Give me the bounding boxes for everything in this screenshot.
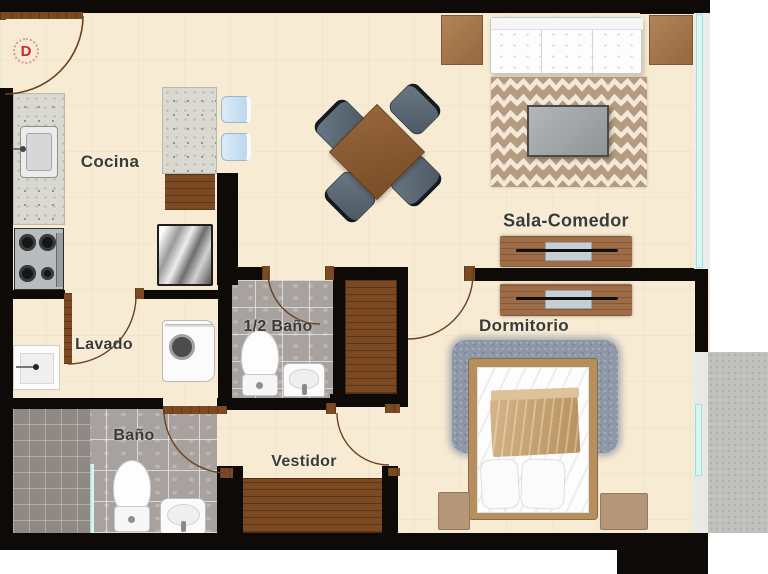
washer-door bbox=[169, 334, 195, 360]
door-jamb bbox=[325, 266, 334, 280]
faucet bbox=[181, 521, 186, 532]
utility-faucet-dot bbox=[33, 364, 39, 370]
sink-basin bbox=[26, 133, 52, 171]
pillow-icon bbox=[520, 458, 566, 510]
bar-stool-icon bbox=[221, 133, 251, 161]
wall-vestidor-right bbox=[382, 466, 398, 534]
wall-south-mid bbox=[217, 398, 333, 410]
room-label-dormitorio: Dormitorio bbox=[479, 316, 569, 336]
kitchen-island-cabinet bbox=[165, 174, 215, 210]
tv-line bbox=[516, 297, 618, 300]
burner bbox=[39, 234, 56, 251]
half-bath-sink-icon bbox=[283, 363, 325, 397]
wall-laundry-top-left bbox=[13, 290, 65, 299]
bathroom-door-leaf bbox=[163, 406, 227, 414]
bed-icon bbox=[468, 358, 598, 520]
wall-bottom-right-block bbox=[617, 533, 708, 574]
wall-left bbox=[0, 88, 13, 549]
side-table-icon bbox=[441, 15, 483, 65]
side-table-icon bbox=[649, 15, 693, 65]
wall-right-upper bbox=[695, 268, 708, 353]
kitchen-island-counter bbox=[162, 87, 217, 174]
nightstand-icon bbox=[600, 493, 648, 530]
window-icon bbox=[695, 404, 702, 476]
faucet bbox=[302, 384, 307, 395]
pillow-icon bbox=[480, 458, 521, 510]
door-jamb bbox=[262, 266, 270, 280]
bedroom-closet-icon bbox=[345, 278, 397, 394]
bar-stool-icon bbox=[221, 96, 251, 123]
laundry-door-leaf bbox=[64, 293, 72, 364]
stove-icon bbox=[14, 228, 64, 290]
room-label-lavado: Lavado bbox=[75, 336, 133, 354]
entry-door-label: D bbox=[21, 43, 32, 60]
door-jamb bbox=[135, 288, 144, 299]
fridge-icon bbox=[157, 224, 213, 286]
kitchen-sink-icon bbox=[20, 126, 58, 178]
room-label-cocina: Cocina bbox=[81, 152, 139, 172]
toilet-icon bbox=[110, 460, 154, 534]
wall-sala-dormitorio bbox=[472, 268, 708, 281]
kitchen-faucet-dot bbox=[20, 146, 26, 152]
wall-halfbath-top-left bbox=[218, 267, 264, 280]
toilet-icon bbox=[238, 330, 282, 398]
wall-top-right-corner bbox=[640, 0, 710, 14]
floor-plan: Cocina Lavado Baño 1/2 Baño Vestidor Sal… bbox=[0, 0, 768, 574]
nightstand-icon bbox=[438, 492, 470, 530]
toilet-flush bbox=[256, 382, 263, 389]
door-jamb bbox=[385, 404, 400, 413]
bathroom-sink-icon bbox=[160, 498, 206, 534]
door-jamb bbox=[326, 403, 336, 414]
wall-closet-right bbox=[397, 267, 408, 407]
window-icon bbox=[696, 14, 703, 268]
tv-console-icon bbox=[500, 236, 632, 267]
wall-top bbox=[0, 0, 710, 13]
burner bbox=[19, 234, 36, 251]
wall-laundry-top-right bbox=[143, 290, 218, 299]
utility-faucet-icon bbox=[16, 366, 34, 368]
toilet-flush bbox=[128, 516, 135, 523]
washer-panel bbox=[165, 324, 213, 327]
vestidor-closet-icon bbox=[233, 478, 385, 533]
door-jamb bbox=[220, 468, 233, 478]
entry-door-leaf bbox=[3, 12, 83, 19]
wall-south-left bbox=[13, 398, 163, 409]
tv-console-icon bbox=[500, 284, 632, 316]
tv-line bbox=[516, 249, 618, 252]
wall-halfbath-right bbox=[333, 280, 345, 398]
sofa-icon bbox=[490, 17, 642, 74]
sofa-back bbox=[491, 18, 643, 30]
door-jamb bbox=[388, 468, 400, 476]
bed-blanket bbox=[490, 395, 581, 458]
door-jamb bbox=[464, 266, 475, 281]
coffee-table-icon bbox=[527, 105, 609, 157]
shower-glass-panel bbox=[90, 464, 94, 534]
door-jamb bbox=[0, 12, 6, 20]
shower-icon bbox=[13, 408, 90, 534]
wall-halfbath-left bbox=[218, 283, 232, 409]
burner bbox=[19, 265, 36, 282]
room-label-bano: Baño bbox=[113, 427, 154, 445]
burner bbox=[41, 267, 54, 280]
room-label-sala-comedor: Sala-Comedor bbox=[503, 211, 629, 232]
washing-machine-icon bbox=[162, 320, 215, 382]
wall-bottom bbox=[0, 533, 708, 550]
room-label-medio-bano: 1/2 Baño bbox=[243, 318, 312, 336]
room-label-vestidor: Vestidor bbox=[271, 453, 337, 471]
entry-door-marker: D bbox=[13, 38, 39, 64]
stove-controls bbox=[56, 233, 63, 287]
terrace-floor bbox=[708, 352, 768, 533]
